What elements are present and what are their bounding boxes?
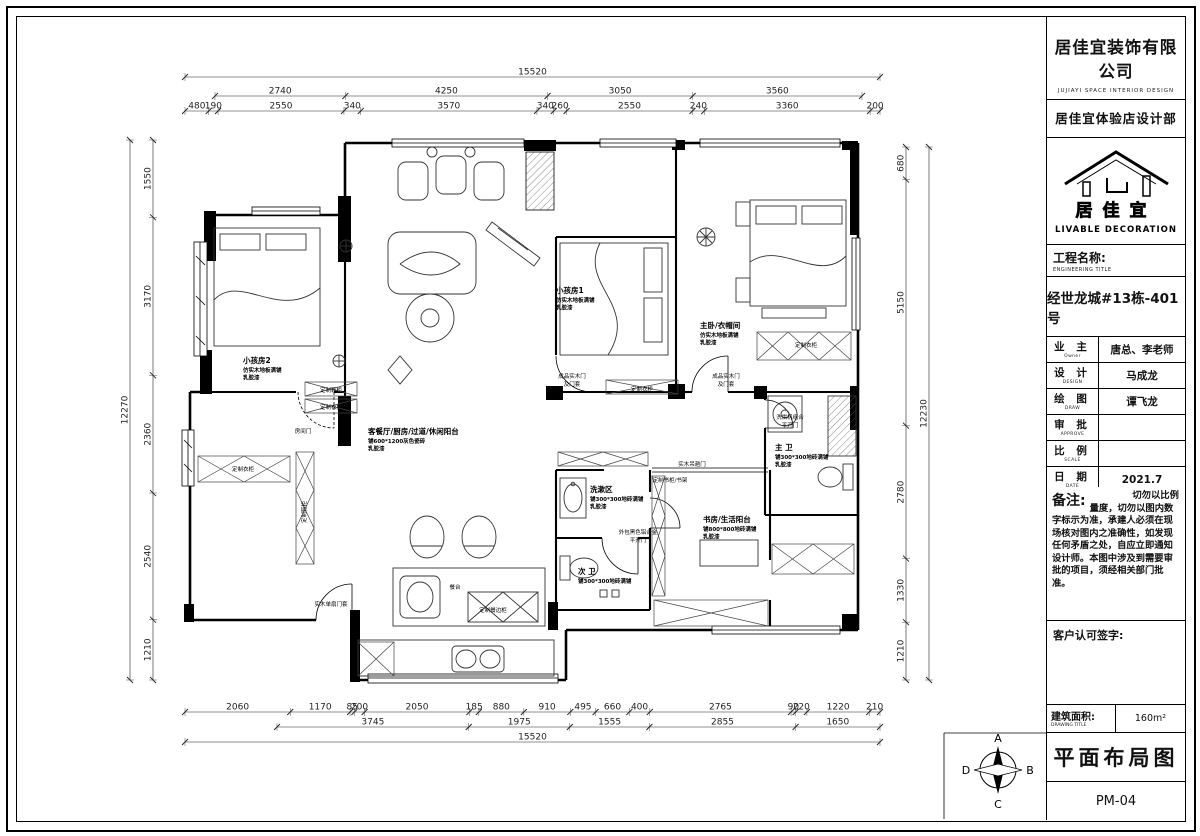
sofa-set: [398, 147, 504, 200]
table-row: 绘 图DRAW 谭飞龙: [1047, 389, 1185, 415]
row-label-en: DESIGN: [1047, 380, 1098, 385]
row-value: [1099, 415, 1185, 440]
annotation-label: 定制鞋柜: [320, 386, 343, 394]
dim-label: 3050: [609, 87, 632, 97]
row-label-en: SCALE: [1047, 458, 1098, 463]
dim-label: 12270: [121, 395, 131, 424]
annotation-label: 定制餐边柜: [479, 606, 507, 614]
compass-south-label: C: [994, 798, 1002, 811]
compass-north-label: A: [994, 732, 1002, 745]
dim-label: 2780: [897, 480, 907, 503]
row-label: 业 主: [1047, 339, 1098, 354]
drawing-title: 平面布局图: [1047, 733, 1185, 782]
annotation-label: 平开门: [782, 421, 799, 429]
dim-label: 400: [631, 703, 648, 713]
room-label: 主卧/衣帽间仿实木地板满铺乳胶漆: [700, 320, 740, 347]
client-signature-area[interactable]: 客户认可签字:: [1047, 621, 1185, 705]
room-label: 主 卫铺300*300地砖满铺乳胶漆: [775, 442, 829, 469]
dim-label: 1210: [897, 639, 907, 662]
engineering-title-label: 工程名称:: [1053, 249, 1179, 266]
dim-label: 2550: [270, 102, 293, 112]
bay-window: [182, 430, 194, 486]
column-symbol: [333, 355, 345, 367]
annotation-label: 定制衣柜: [320, 403, 343, 411]
dim-label: 2360: [144, 422, 154, 445]
dim-label: 200: [351, 703, 368, 713]
logo-tagline: LIVABLE DECORATION: [1055, 225, 1177, 235]
row-label: 日 期: [1047, 469, 1098, 484]
annotation-label: 定制衣柜: [795, 341, 818, 349]
tv-stand: [486, 222, 540, 266]
dim-label: 910: [538, 703, 555, 713]
dim-label: 3745: [361, 718, 384, 728]
column-symbol: [340, 240, 352, 252]
desk: [700, 540, 758, 566]
row-value: [1099, 441, 1185, 466]
row-value: 2021.7: [1099, 467, 1185, 487]
dim-label: 680: [897, 154, 907, 171]
annotation-label: 外包黑色铝合金: [619, 528, 658, 536]
room-label: 书房/生活阳台铺800*800地砖满铺乳胶漆: [703, 514, 757, 541]
dim-label: 15520: [518, 733, 547, 743]
kitchen-counter: [358, 640, 554, 676]
dim-label: 2540: [144, 545, 154, 568]
company-header: 居佳宜装饰有限公司 JUJIAYI SPACE INTERIOR DESIGN: [1047, 16, 1185, 100]
row-label-en: DRAW: [1047, 406, 1098, 411]
room-label: 客餐厅/厨房/过道/休闲阳台铺600*1200灰色瓷砖乳胶漆: [367, 426, 459, 453]
area-value: 160m²: [1116, 705, 1185, 732]
annotation-label: 定制衣柜: [232, 465, 255, 473]
dim-label: 1555: [598, 718, 621, 728]
ceiling-fan: [697, 228, 715, 246]
dim-label: 1170: [309, 703, 332, 713]
dim-label: 190: [205, 102, 222, 112]
dim-label: 2050: [406, 703, 429, 713]
bay-window: [194, 242, 207, 356]
row-value: 唐总、李老师: [1099, 337, 1185, 362]
bed: [736, 200, 846, 318]
table-row: 比 例SCALE: [1047, 441, 1185, 467]
sink: [560, 478, 586, 518]
plan-labels: 小孩房2仿实木地板满铺乳胶漆小孩房1仿实木地板满铺乳胶漆主卧/衣帽间仿实木地板满…: [232, 285, 829, 614]
department-name: 居佳宜体验店设计部: [1047, 100, 1185, 138]
notes-section: 备注: 切勿以比例量度，切勿以图内数字标示为准，承建人必须在现场核对图内之准确性…: [1047, 487, 1185, 621]
dim-label: 1550: [144, 167, 154, 190]
project-name: 经世龙城#13栋-401号: [1047, 277, 1185, 337]
dim-label: 2740: [269, 87, 292, 97]
floor-drain: [612, 590, 619, 597]
title-block: 居佳宜装饰有限公司 JUJIAYI SPACE INTERIOR DESIGN …: [1046, 16, 1185, 820]
dim-label: 240: [690, 102, 707, 112]
bed: [214, 228, 320, 346]
rug: [388, 232, 476, 294]
dim-label: 880: [493, 703, 510, 713]
dim-label: 260: [552, 102, 569, 112]
dim-label: 2855: [711, 718, 734, 728]
annotation-label: 餐台: [449, 583, 461, 591]
company-logo: 居佳宜 LIVABLE DECORATION: [1047, 138, 1185, 245]
annotation-label: 成品实木门: [712, 372, 740, 380]
dim-label: 12230: [920, 399, 930, 428]
engineering-title-en: ENGINEERING TITLE: [1053, 267, 1179, 273]
dim-label: 220: [793, 703, 810, 713]
pouf: [388, 356, 412, 384]
row-label-en: Owner: [1047, 354, 1098, 359]
cabinets: [198, 332, 854, 676]
round-table: [406, 294, 454, 342]
row-value: 谭飞龙: [1099, 389, 1185, 414]
room-label: 小孩房2仿实木地板满铺乳胶漆: [243, 355, 282, 382]
dim-label: 1650: [826, 718, 849, 728]
dim-label: 5150: [897, 291, 907, 314]
annotation-label: 定制鞋柜: [300, 501, 308, 524]
table-row: 设 计DESIGN 马成龙: [1047, 363, 1185, 389]
wall-piers: [184, 140, 858, 682]
dim-label: 4250: [435, 87, 458, 97]
dim-label: 185: [466, 703, 483, 713]
dim-label: 3570: [437, 102, 460, 112]
room-label: 洗漱区铺300*300地砖满铺乳胶漆: [590, 484, 644, 511]
sliding-door: [652, 468, 768, 472]
table-row: 日 期DATE 2021.7: [1047, 467, 1185, 487]
dim-label: 480: [188, 102, 205, 112]
building-area-row: 建筑面积:DRAWING TITLE 160m²: [1047, 705, 1185, 733]
toilet: [818, 464, 853, 490]
info-table: 业 主Owner 唐总、李老师 设 计DESIGN 马成龙 绘 图DRAW 谭飞…: [1047, 337, 1185, 487]
dim-label: 340: [344, 102, 361, 112]
floor-plan: 1552027404250305035604801902550340357034…: [0, 0, 1046, 836]
room-label: 次 卫铺300*300地砖满铺: [578, 566, 632, 585]
engineering-title: 工程名称: ENGINEERING TITLE: [1047, 245, 1185, 277]
annotation-label: 及门套: [718, 380, 735, 388]
dim-label: 1220: [827, 703, 850, 713]
row-label: 比 例: [1047, 443, 1098, 458]
dining-chair: [410, 516, 444, 558]
dim-label: 2550: [618, 102, 641, 112]
logo-graphic: 居佳宜 LIVABLE DECORATION: [1047, 138, 1185, 244]
masonry-pier: [526, 152, 554, 210]
dim-label: 3560: [766, 87, 789, 97]
table-row: 审 批APPROVE: [1047, 415, 1185, 441]
compass: A B C D: [944, 732, 1046, 819]
annotation-label: 定制书柜/书架: [653, 476, 688, 484]
room-label: 小孩房1仿实木地板满铺乳胶漆: [556, 285, 595, 312]
dim-label: 495: [574, 703, 591, 713]
annotation-label: 房间门: [295, 427, 312, 435]
dim-label: 1975: [508, 718, 531, 728]
dining-chair: [462, 516, 496, 558]
annotation-label: 成品实木门: [558, 372, 586, 380]
windows: [182, 139, 860, 683]
dim-label: 200: [866, 102, 883, 112]
company-name: 居佳宜装饰有限公司: [1047, 34, 1185, 82]
dim-label: 1330: [897, 579, 907, 602]
dim-label: 15520: [518, 68, 547, 78]
row-value: 马成龙: [1099, 363, 1185, 388]
dim-label: 3360: [776, 102, 799, 112]
company-name-en: JUJIAYI SPACE INTERIOR DESIGN: [1047, 88, 1185, 94]
notes-label: 备注:: [1052, 490, 1086, 510]
row-label: 绘 图: [1047, 391, 1098, 406]
annotation-label: 平开门: [630, 536, 647, 544]
dim-label: 2060: [226, 703, 249, 713]
dim-label: 3170: [144, 285, 154, 308]
annotation-label: 及门套: [564, 380, 581, 388]
area-label-en: DRAWING TITLE: [1051, 723, 1111, 728]
annotation-label: 实木吊趟门: [678, 460, 706, 468]
floor-drain: [600, 590, 607, 597]
dim-label: 210: [866, 703, 883, 713]
compass-east-label: B: [1026, 764, 1034, 777]
doors: [298, 356, 793, 620]
dim-label: 1210: [144, 638, 154, 661]
row-label: 审 批: [1047, 417, 1098, 432]
dining-island: [393, 568, 545, 626]
row-label: 设 计: [1047, 365, 1098, 380]
dim-label: 660: [604, 703, 621, 713]
logo-name: 居佳宜: [1076, 200, 1157, 221]
compass-west-label: D: [962, 764, 970, 777]
shower: [828, 396, 856, 456]
area-label: 建筑面积:: [1051, 708, 1111, 723]
table-row: 业 主Owner 唐总、李老师: [1047, 337, 1185, 363]
annotation-label: 实木单扇门套: [314, 600, 348, 608]
drawing-number: PM-04: [1047, 782, 1185, 820]
annotation-label: 洗烘机组合: [776, 413, 804, 421]
row-label-en: APPROVE: [1047, 432, 1098, 437]
annotation-label: 定制衣柜: [631, 385, 654, 393]
dim-label: 2765: [709, 703, 732, 713]
